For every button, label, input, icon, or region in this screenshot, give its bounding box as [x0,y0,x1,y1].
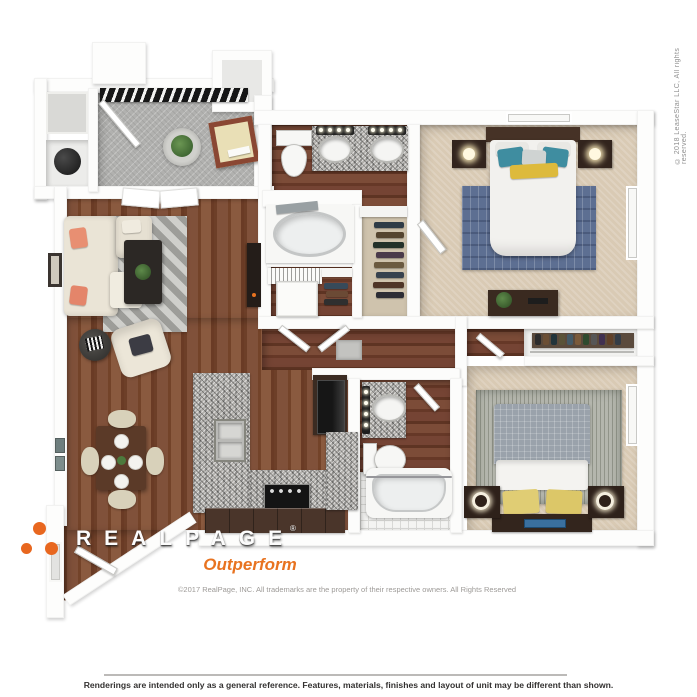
bedroom2-pillow-left [502,489,540,515]
closet-cloth-4 [376,252,404,258]
vanity-light-bar-right [368,126,406,135]
lamp-master-left [463,148,475,160]
sofa-pillow-coral-top [69,227,89,249]
light-switch-upper [55,438,65,453]
entry-trellis [100,88,248,102]
plate-top [114,434,129,449]
master-throw-yellow [510,163,559,179]
vanity-light-bar-left [316,126,354,135]
dining-chair-bottom [108,490,136,509]
master-sink-left [318,136,352,163]
closet-cloth-7 [373,282,404,288]
closet-cloth-1 [374,222,404,228]
entry-closet-front-wall [88,88,98,192]
floor-plan-image: REALPAGE ® Outperform ©2017 RealPage, IN… [0,0,697,697]
dining-centerpiece [117,456,126,465]
dining-chair-top [108,410,136,428]
closet-cloth-5 [374,262,404,268]
master-window-right [626,186,639,260]
footer-disclaimer: Renderings are intended only as a genera… [60,680,637,690]
chaise-pillow [122,219,142,233]
entry-bench [208,116,259,169]
shower-curtain-rod [366,476,452,478]
closet-cloth-2 [376,232,404,238]
realpage-logo: REALPAGE [76,527,295,551]
plate-left [101,455,116,470]
floor-vent [336,340,362,360]
logo-dot-left [21,543,32,554]
bedroom2-bed-sheet [496,460,588,490]
closet2-rod [530,351,634,353]
refrigerator [317,380,345,434]
walkin-closet-shelf [360,206,407,217]
closet-cloth-3 [373,242,404,248]
bedroom2-bed-blanket [494,404,590,464]
dining-chair-right [146,447,164,475]
tv-console [247,243,261,307]
logo-dot-right [45,542,58,555]
registered-mark: ® [290,524,296,533]
entry-double-door-left [121,187,160,208]
hanging-item-1 [324,283,348,289]
kitchen-sink-basin-bottom [218,442,242,458]
tub2-basin [372,474,446,512]
dining-chair-left [81,447,99,475]
closet-cloth-6 [376,272,404,278]
closet-cloth-8 [376,292,404,298]
bath2-sink [372,394,406,422]
bath-master-wall [407,124,420,318]
wall-fin-top [92,42,146,84]
plate-bottom [114,474,129,489]
hanging-item-2 [326,291,348,297]
tv-console-logo [252,293,256,297]
potted-plant [171,135,193,157]
sofa-pillow-coral-bottom [69,285,88,306]
bedroom2-headboard-runner [524,519,566,528]
linen-cabinet [276,281,318,317]
ring-lamp-left [472,492,490,510]
bedroom2-pillow-right [545,489,582,515]
tagline-outperform: Outperform [150,555,350,575]
entry-double-door-right [159,187,198,208]
logo-dot-top [33,522,46,535]
side-watermark: © 2018 LeaseStar LLC, All rights reserve… [674,14,688,164]
bath2-light-bar [362,386,370,434]
dresser-plant [496,292,512,308]
wall-art-frame [48,253,62,287]
plate-right [128,455,143,470]
master-window-top [506,112,572,124]
entry-closet-shelf [46,92,88,134]
linen-side-shelf [322,268,352,277]
footer-divider [104,674,567,676]
light-switch-lower [55,456,65,471]
kitchen-right-counter [326,432,358,510]
coffee-table-plant [135,264,151,280]
bedroom2-window-right [626,384,639,446]
dresser-tray [528,298,548,304]
water-heater [54,148,81,175]
master-sink-right [370,136,404,163]
bedroom2-closet-shelf [532,333,634,348]
cooktop-burners [268,488,304,494]
closet2-bottom-wall [524,356,654,366]
tub1-basin [273,211,346,257]
ring-lamp-right [596,492,614,510]
closet-shoes [535,334,541,345]
top-exterior-wall [254,110,654,125]
lamp-master-right [589,148,601,160]
kitchen-sink-basin-top [218,423,242,439]
hanging-item-3 [324,299,348,305]
copyright-line: ©2017 RealPage, INC. All trademarks are … [107,585,587,594]
